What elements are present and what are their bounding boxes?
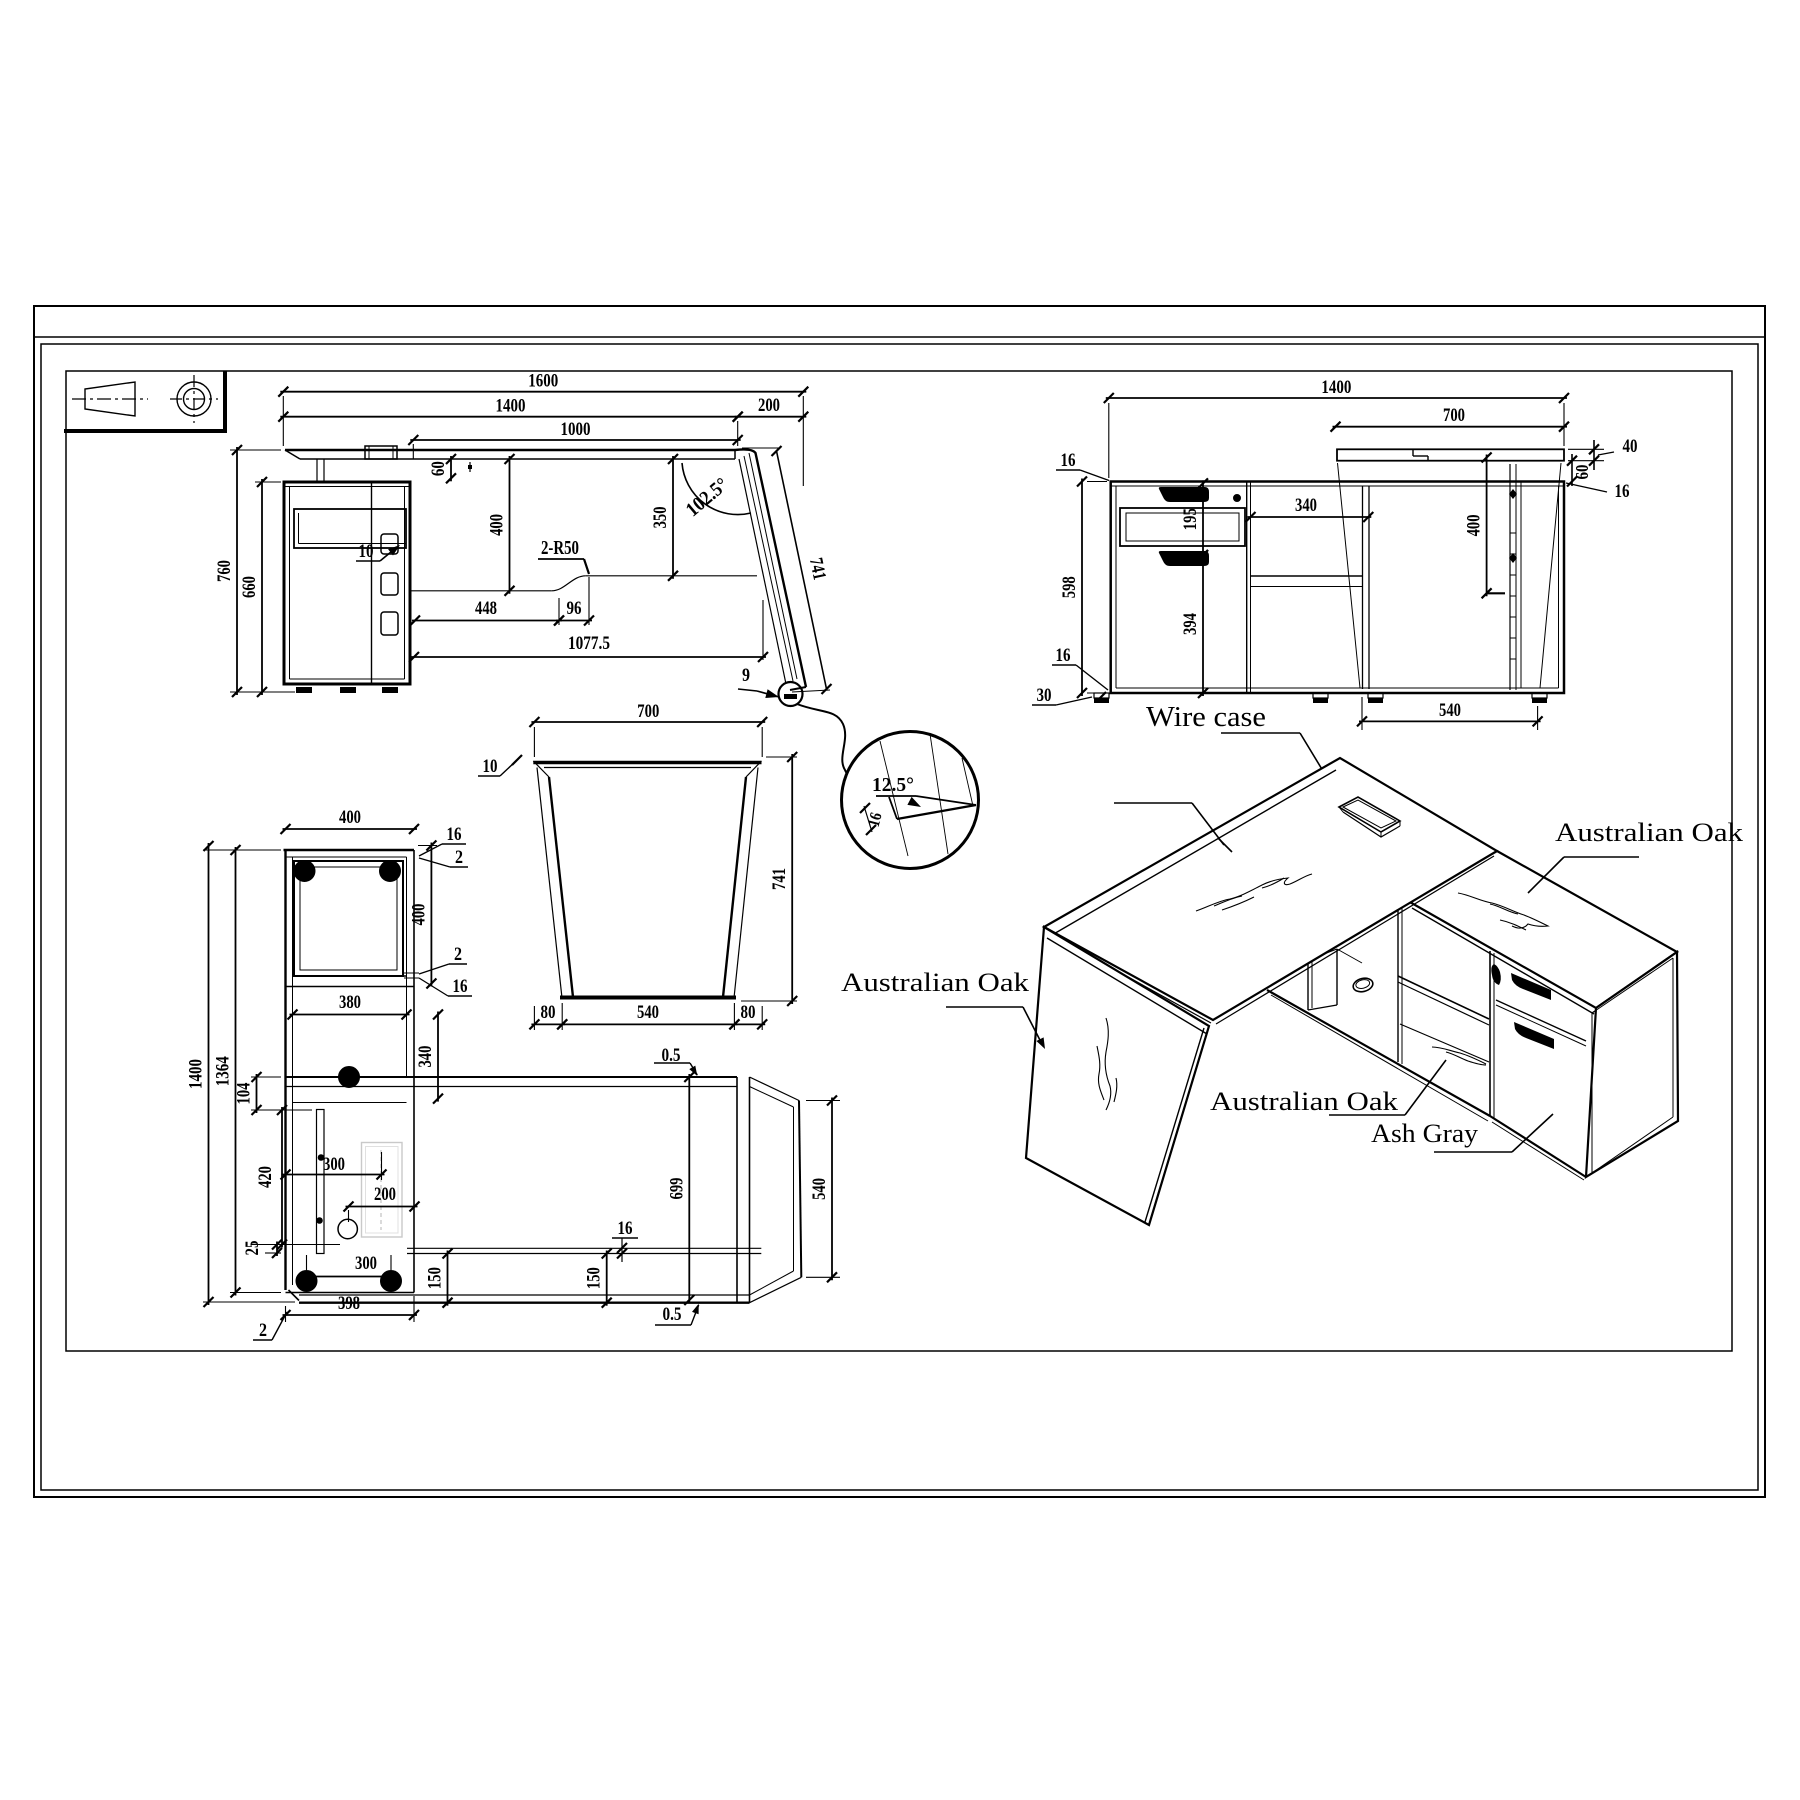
svg-text:1600: 1600 [528,371,558,392]
svg-text:741: 741 [805,556,830,582]
svg-text:2: 2 [454,944,462,965]
svg-text:540: 540 [637,1002,659,1023]
svg-text:12.5°: 12.5° [872,774,914,796]
svg-text:448: 448 [475,598,497,619]
svg-text:10: 10 [359,541,374,562]
svg-text:80: 80 [541,1002,556,1023]
svg-text:60: 60 [1572,465,1592,480]
svg-text:150: 150 [584,1267,605,1289]
svg-text:300: 300 [323,1154,345,1175]
svg-text:10: 10 [483,756,498,777]
svg-text:1400: 1400 [496,396,526,417]
svg-text:60: 60 [428,461,449,476]
svg-text:420: 420 [255,1166,276,1188]
svg-text:699: 699 [666,1178,687,1200]
svg-text:Wire case: Wire case [1146,702,1266,733]
svg-text:Ash Gray: Ash Gray [1371,1119,1478,1148]
svg-text:2-R50: 2-R50 [541,537,579,559]
svg-text:16: 16 [1615,481,1630,502]
svg-text:Australian Oak: Australian Oak [841,968,1029,997]
svg-text:300: 300 [355,1253,377,1274]
svg-text:30: 30 [1037,685,1052,706]
svg-text:400: 400 [1464,514,1485,536]
svg-text:80: 80 [741,1002,756,1023]
svg-text:0.5: 0.5 [663,1304,682,1325]
svg-text:1400: 1400 [186,1059,207,1089]
svg-text:Australian Oak: Australian Oak [1555,818,1743,847]
svg-text:200: 200 [758,395,780,416]
svg-text:700: 700 [637,701,659,722]
svg-text:200: 200 [374,1184,396,1205]
svg-text:16: 16 [453,976,468,997]
svg-text:150: 150 [425,1267,446,1289]
svg-text:380: 380 [339,992,361,1013]
svg-text:760: 760 [214,560,235,582]
svg-text:540: 540 [809,1178,830,1200]
svg-text:16: 16 [1056,645,1071,666]
svg-text:350: 350 [650,506,671,528]
svg-text:96: 96 [567,598,582,619]
svg-text:1400: 1400 [1321,377,1351,398]
svg-text:104: 104 [234,1082,255,1104]
svg-text:394: 394 [1180,613,1201,635]
svg-text:1364: 1364 [213,1056,234,1086]
svg-text:2: 2 [455,847,463,868]
svg-text:2: 2 [259,1320,267,1341]
svg-text:16: 16 [618,1218,633,1239]
svg-text:1077.5: 1077.5 [568,633,610,654]
svg-text:16: 16 [1061,450,1076,471]
svg-text:540: 540 [1439,700,1461,721]
svg-text:40: 40 [1623,436,1638,457]
svg-text:598: 598 [1059,576,1080,598]
svg-text:9: 9 [742,665,750,686]
svg-text:1000: 1000 [561,419,591,440]
svg-text:400: 400 [339,807,361,828]
svg-text:340: 340 [1295,495,1317,516]
svg-text:660: 660 [239,576,260,598]
svg-text:16: 16 [447,824,462,845]
svg-text:400: 400 [408,904,429,926]
svg-text:398: 398 [338,1293,360,1314]
svg-text:25: 25 [242,1241,263,1256]
svg-text:340: 340 [415,1046,436,1068]
svg-text:741: 741 [769,868,790,890]
svg-text:700: 700 [1443,405,1465,426]
svg-text:Australian Oak: Australian Oak [1210,1087,1398,1116]
svg-text:400: 400 [487,514,508,536]
svg-text:195: 195 [1180,508,1201,530]
